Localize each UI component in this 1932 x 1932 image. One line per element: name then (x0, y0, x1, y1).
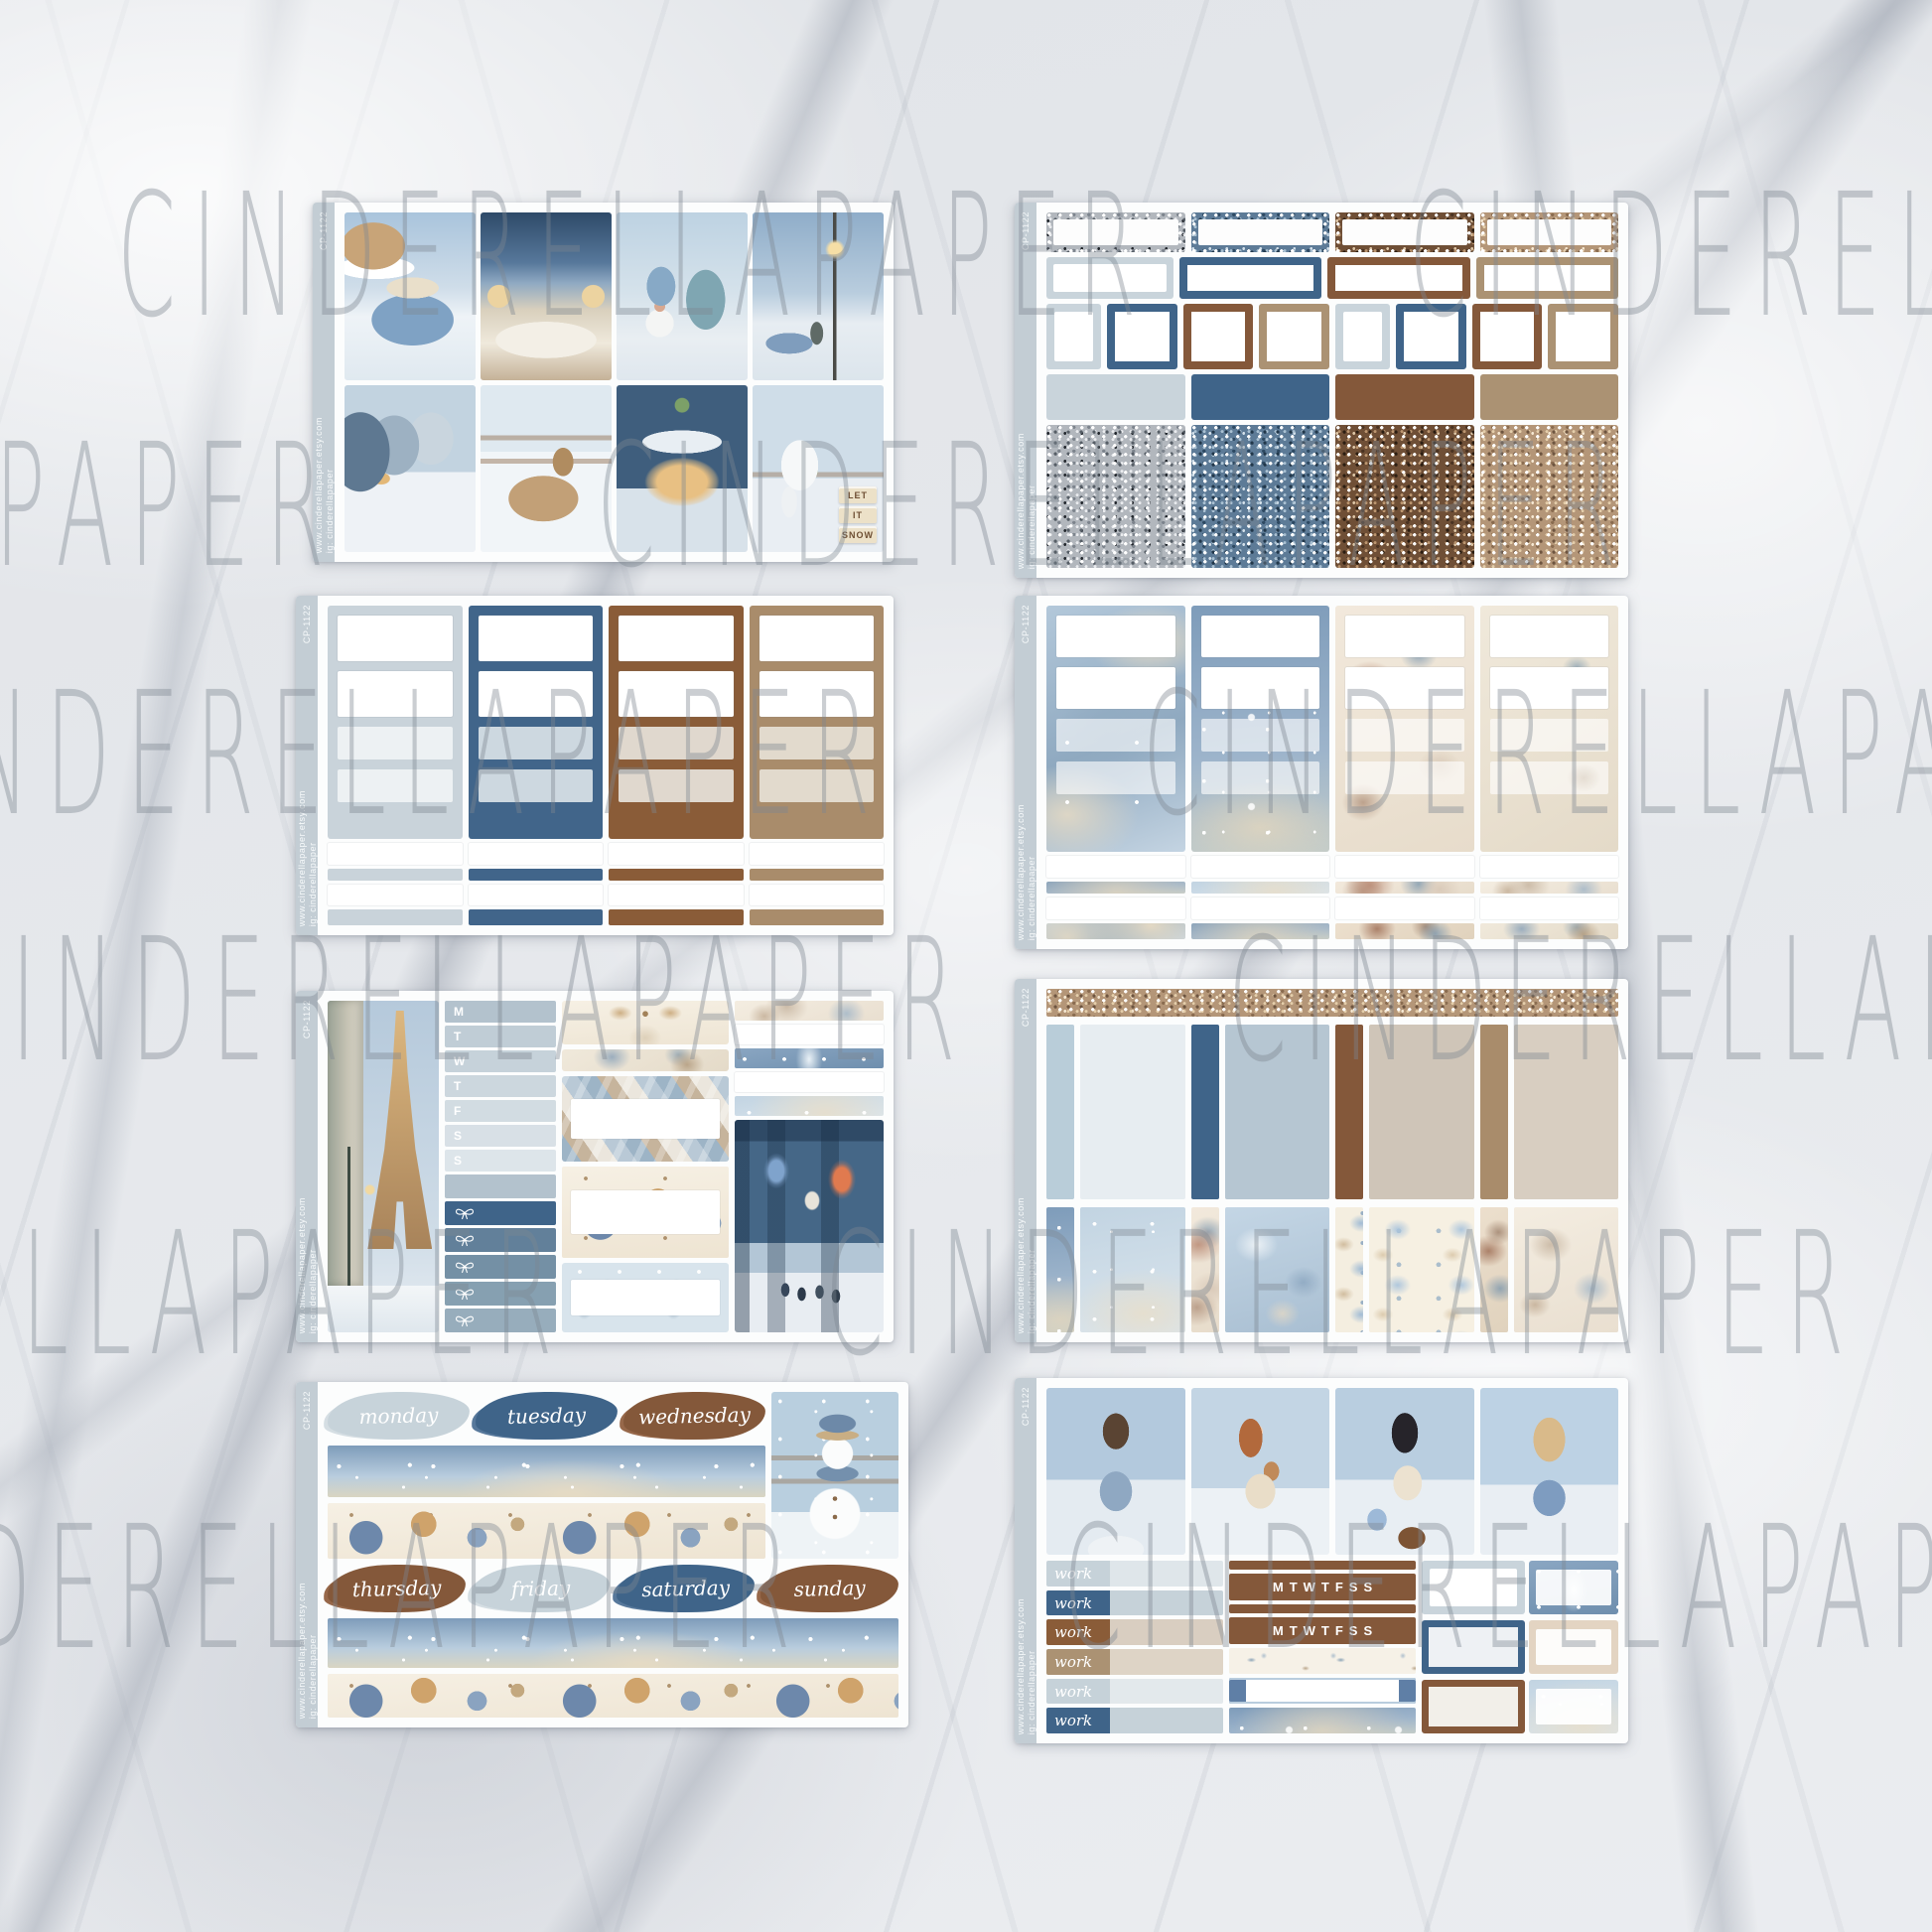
full-box-girl-earmuffs (1046, 1388, 1185, 1555)
label-strip-white (735, 1072, 884, 1092)
pattern-swatch-row (1046, 1207, 1618, 1332)
work-label: work (1046, 1561, 1110, 1587)
swatch-thin-brown (1335, 1025, 1363, 1199)
snowman-illustration (771, 1392, 898, 1559)
shop-instagram: ig: cinderellapaper (308, 1197, 318, 1333)
outline-box-column (1422, 1561, 1618, 1733)
sheet-code: CP-1122 (1021, 1387, 1031, 1426)
checklist-column-brown (609, 606, 744, 925)
header-outline-brown (1327, 257, 1470, 299)
checklist-panel (750, 606, 885, 839)
shop-instagram: ig: cinderellapaper (1027, 804, 1036, 940)
shop-instagram: ig: cinderellapaper (1027, 1197, 1036, 1333)
label-strip-white (1191, 856, 1330, 878)
work-label: work (1046, 1708, 1110, 1733)
write-box (338, 671, 453, 717)
sheet-content: M T W T F S S (318, 991, 894, 1342)
label-strip-pattern (1480, 923, 1619, 939)
checklist-panel (328, 606, 463, 839)
outline-header-row (1046, 257, 1618, 299)
washi-strip-ornaments (328, 1503, 765, 1559)
shop-links: www.cinderellapaper.etsy.com ig: cindere… (1016, 1598, 1036, 1734)
frosted-box (1490, 761, 1609, 794)
full-box-truck-illustration (345, 212, 476, 380)
work-label: work (1046, 1649, 1110, 1675)
work-strip-extension (1110, 1590, 1223, 1616)
full-box-grid: LET IT SNOW (345, 212, 884, 552)
watermark-row: CINDERELLAPAPERCINDERELLAPAPER (0, 1537, 1932, 1639)
work-strip-extension (1110, 1619, 1223, 1645)
bow-icon (454, 1233, 476, 1247)
shop-links: www.cinderellapaper.etsy.com ig: cindere… (1016, 804, 1036, 940)
knit-pattern-box (562, 1076, 729, 1162)
sheet-content (1036, 596, 1628, 949)
day-cover-row-2: thursday friday saturday sunday (328, 1565, 898, 1612)
label-strip-color (609, 909, 744, 925)
glitter-header-gold (1480, 212, 1619, 252)
habit-letter: S (454, 1154, 462, 1168)
label-strip-pattern (1191, 882, 1330, 894)
square-write-area (1054, 312, 1093, 361)
write-box (1201, 616, 1320, 657)
box-row (1422, 1680, 1618, 1733)
write-box (759, 671, 875, 717)
label-strip-color (328, 869, 463, 881)
sticker-sheet-headers-glitter: CP-1122 www.cinderellapaper.etsy.com ig:… (1015, 203, 1628, 578)
header-write-area (1198, 219, 1323, 245)
header-outline-blue (1179, 257, 1322, 299)
frosted-box (1056, 719, 1175, 752)
watermark-text: CINDERELLAPAPER (0, 406, 341, 606)
label-strip-color (469, 869, 604, 881)
sheet-edge-tab: CP-1122 www.cinderellapaper.etsy.com ig:… (313, 203, 335, 562)
top-left-section: monday tuesday wednesday (328, 1392, 765, 1559)
header-write-area (1487, 219, 1612, 245)
shop-instagram: ig: cinderellapaper (325, 417, 335, 553)
habit-letter: F (454, 1104, 461, 1118)
tinted-box (619, 769, 734, 802)
full-box-girl-fawn (1191, 1388, 1330, 1555)
box-outline-blue (1422, 1620, 1525, 1674)
wood-block: LET (839, 486, 877, 503)
mini-washi-strip (1229, 1678, 1416, 1704)
label-strip-white (1335, 856, 1474, 878)
header-write-area (1053, 264, 1167, 292)
frosted-box (1345, 761, 1464, 794)
bow-icon (454, 1260, 476, 1274)
label-strip-white (469, 843, 604, 865)
work-label-strip: work (1046, 1590, 1223, 1616)
decorated-column-stocking (1046, 606, 1185, 939)
work-strip-extension (1110, 1561, 1223, 1587)
sheet-code: CP-1122 (319, 211, 329, 250)
label-strip-white (328, 843, 463, 865)
full-box-girl-shopper (1335, 1388, 1474, 1555)
work-label: work (1046, 1679, 1110, 1705)
tinted-box (338, 769, 453, 802)
work-label-strip: work (1046, 1649, 1223, 1675)
label-strip-color (750, 869, 885, 881)
work-strip-extension (1110, 1679, 1223, 1705)
write-box (1056, 667, 1175, 709)
tinted-box (619, 727, 734, 759)
sheet-content: LET IT SNOW (335, 203, 894, 562)
day-cover-friday: friday (472, 1563, 611, 1613)
label-strip-pattern (1046, 882, 1185, 894)
work-label-strip: work (1046, 1679, 1223, 1705)
sticker-sheet-date-covers: CP-1122 www.cinderellapaper.etsy.com ig:… (296, 1382, 908, 1727)
label-strip-white (328, 885, 463, 906)
sticker-sheet-checklist-columns: CP-1122 www.cinderellapaper.etsy.com ig:… (296, 596, 894, 935)
paris-eiffel-illustration (328, 1001, 439, 1332)
habit-letter: W (454, 1054, 465, 1068)
bottom-section: work work work work work work MTWTFSS MT… (1046, 1561, 1618, 1733)
swatch-pattern-sweater (1335, 1207, 1363, 1332)
solid-bar-row (1046, 374, 1618, 420)
decorated-column-poinsettia (1335, 606, 1474, 939)
label-strip-pattern (1191, 923, 1330, 939)
solid-swatch-row (1046, 1025, 1618, 1199)
work-label: work (1046, 1590, 1110, 1616)
write-area (1430, 1569, 1517, 1606)
label-strip-white (750, 885, 885, 906)
write-area (571, 1190, 720, 1234)
day-cover-sunday: sunday (759, 1563, 898, 1613)
write-box (338, 616, 453, 661)
work-label-strip: work (1046, 1708, 1223, 1733)
label-strip-pattern (1335, 882, 1474, 894)
glitter-header-brown (1335, 212, 1474, 252)
habit-strip: T (445, 1026, 556, 1047)
header-pale-blue (1046, 257, 1173, 299)
label-strip-white (1335, 897, 1474, 919)
shop-links: www.cinderellapaper.etsy.com ig: cindere… (297, 1583, 318, 1719)
habit-strip: W (445, 1050, 556, 1072)
product-photo-marble-background: CINDERELLAPAPERCINDERELLAPAPER CINDERELL… (0, 0, 1932, 1932)
sheet-edge-tab: CP-1122 www.cinderellapaper.etsy.com ig:… (296, 1382, 318, 1727)
pine-pattern-box (562, 1263, 729, 1332)
write-box (1490, 616, 1609, 657)
frosted-box (1345, 719, 1464, 752)
sheet-code: CP-1122 (302, 1391, 312, 1430)
day-cover-monday: monday (327, 1390, 470, 1441)
checklist-column-tan (750, 606, 885, 925)
watermark-row: CINDERELLAPAPERCINDERELLAPAPER (0, 703, 1932, 805)
label-strip-white (750, 843, 885, 865)
bow-icon (454, 1287, 476, 1301)
habit-strip: T (445, 1075, 556, 1097)
bow-strip (445, 1201, 556, 1225)
decorated-columns (1046, 606, 1618, 939)
label-strip-pattern (735, 1001, 884, 1021)
square-outline-blue (1396, 304, 1466, 369)
label-strip-column (735, 1001, 884, 1332)
label-strip-color (328, 909, 463, 925)
label-strip-pattern (1480, 882, 1619, 894)
habit-tracker-column: M T W T F S S (445, 1001, 556, 1332)
solid-bar-dark-blue (1191, 374, 1330, 420)
pattern-box-snow-tree (1529, 1561, 1618, 1614)
shop-links: www.cinderellapaper.etsy.com ig: cindere… (1016, 433, 1036, 569)
watermark-row: CINDERELLAPAPERCINDERELLAPAPER (0, 1243, 1932, 1345)
sheet-code: CP-1122 (302, 605, 312, 643)
glitter-header-row (1046, 212, 1618, 252)
work-label-strip: work (1046, 1619, 1223, 1645)
mini-washi-strip (1229, 1648, 1416, 1674)
glitter-square-silver (1046, 425, 1185, 568)
glitter-square-blue (1191, 425, 1330, 568)
frosted-box (1056, 761, 1175, 794)
box-outline-brown (1422, 1680, 1525, 1733)
label-strip-white (1046, 856, 1185, 878)
shop-instagram: ig: cinderellapaper (1027, 433, 1036, 569)
swatch-pattern-snowflake-pale (1080, 1207, 1185, 1332)
day-cover-thursday: thursday (327, 1563, 466, 1613)
write-area (1536, 1570, 1611, 1605)
write-box (1056, 616, 1175, 657)
label-strip-white (1480, 897, 1619, 919)
decorated-panel (1191, 606, 1330, 852)
shop-url: www.cinderellapaper.etsy.com (297, 790, 307, 926)
ornament-pattern-box (562, 1167, 729, 1258)
write-box (1345, 616, 1464, 657)
write-area (571, 1280, 720, 1315)
pattern-box-snow-pale (1529, 1680, 1618, 1733)
shop-links: www.cinderellapaper.etsy.com ig: cindere… (297, 1197, 318, 1333)
swatch-pattern-sweater-cream (1369, 1207, 1474, 1332)
sheet-edge-tab: CP-1122 www.cinderellapaper.etsy.com ig:… (1015, 203, 1036, 578)
header-write-area (1342, 219, 1467, 245)
work-label: work (1046, 1619, 1110, 1645)
mini-washi-strip (1229, 1708, 1416, 1733)
sheet-edge-tab: CP-1122 www.cinderellapaper.etsy.com ig:… (1015, 1378, 1036, 1743)
bow-strip (445, 1255, 556, 1279)
write-box (759, 616, 875, 661)
checklist-column-pale-blue (328, 606, 463, 925)
full-box-girl-snowball (1480, 1388, 1619, 1555)
label-strip-white (735, 1025, 884, 1044)
top-section: monday tuesday wednesday (328, 1392, 898, 1559)
label-strip-white (1480, 856, 1619, 878)
bow-strip (445, 1228, 556, 1252)
swatch-thin-dark-blue (1191, 1025, 1219, 1199)
write-area (1536, 1629, 1611, 1665)
checklist-columns (328, 606, 884, 925)
washi-strip-snow-sky (328, 1618, 898, 1668)
sheet-content: work work work work work work MTWTFSS MT… (1036, 1378, 1628, 1743)
frosted-box (1201, 719, 1320, 752)
habit-letter: M (454, 1005, 464, 1019)
box-row (1422, 1561, 1618, 1614)
frosted-box (1490, 719, 1609, 752)
week-strip-column: MTWTFSS MTWTFSS (1229, 1561, 1416, 1733)
label-strip-white (1191, 897, 1330, 919)
label-strip-white (1046, 897, 1185, 919)
work-strip-extension (1110, 1708, 1223, 1733)
write-box (1490, 667, 1609, 709)
day-cover-wednesday: wednesday (622, 1390, 765, 1441)
write-box (1345, 667, 1464, 709)
square-outline-tan (1548, 304, 1618, 369)
bow-pattern-box (562, 1001, 729, 1044)
lamp-post-shape (347, 1147, 350, 1300)
label-strip-color (609, 869, 744, 881)
solid-bar-pale-blue (1046, 374, 1185, 420)
snow-ground-shape (328, 1286, 439, 1332)
frosted-box (1201, 761, 1320, 794)
tinted-box (759, 727, 875, 759)
box-row (1422, 1620, 1618, 1674)
bow-icon (454, 1313, 476, 1327)
full-box-rocking-horse-illustration: LET IT SNOW (753, 385, 884, 553)
habit-letter: T (454, 1079, 461, 1093)
sheet-edge-tab: CP-1122 www.cinderellapaper.etsy.com ig:… (1015, 979, 1036, 1342)
floral-strip (562, 1049, 729, 1071)
shop-instagram: ig: cinderellapaper (308, 790, 318, 926)
square-pale-blue (1335, 304, 1390, 369)
glitter-header-silver (1046, 212, 1185, 252)
decorated-column-snowflakes (1191, 606, 1330, 939)
label-strip-white (609, 843, 744, 865)
label-strip-color (750, 909, 885, 925)
glitter-square-brown (1335, 425, 1474, 568)
full-box-bedroom-illustration (481, 212, 612, 380)
full-box-cafe-illustration (617, 385, 748, 553)
washi-strip-ornaments (328, 1674, 898, 1718)
sheet-edge-tab: CP-1122 www.cinderellapaper.etsy.com ig:… (1015, 596, 1036, 949)
tinted-box (479, 727, 594, 759)
box-pale-blue (1422, 1561, 1525, 1614)
glitter-square-row (1046, 425, 1618, 568)
day-cover-row-1: monday tuesday wednesday (328, 1392, 765, 1440)
solid-bar-tan (1480, 374, 1619, 420)
habit-strip: M (445, 1001, 556, 1023)
sheet-code: CP-1122 (1021, 605, 1031, 643)
full-box-town-illustration (345, 385, 476, 553)
swatch-pattern-blue-floral (1225, 1207, 1330, 1332)
week-letters-strip: MTWTFSS (1229, 1617, 1416, 1644)
wood-block: SNOW (839, 526, 877, 543)
checklist-panel (469, 606, 604, 839)
eiffel-tower-shape (367, 1011, 432, 1249)
decorated-box-column (562, 1001, 729, 1332)
full-box-street-lamp-illustration (753, 212, 884, 380)
solid-bar-brown (1335, 374, 1474, 420)
bow-strip (445, 1309, 556, 1332)
bow-icon (454, 1206, 476, 1220)
sticker-sheet-girls-work: CP-1122 www.cinderellapaper.etsy.com ig:… (1015, 1378, 1628, 1743)
decorated-panel (1480, 606, 1619, 852)
swatch-wide-blue-gray (1225, 1025, 1330, 1199)
label-strip-pattern (735, 1048, 884, 1068)
paris-building-shape (328, 1001, 363, 1286)
day-cover-tuesday: tuesday (475, 1390, 618, 1441)
shop-instagram: ig: cinderellapaper (1027, 1598, 1036, 1734)
habit-strip: S (445, 1125, 556, 1147)
washi-strip-snow-sky (328, 1446, 765, 1497)
shop-url: www.cinderellapaper.etsy.com (297, 1197, 307, 1333)
label-strip-white (469, 885, 604, 906)
swatch-wide-beige (1514, 1025, 1619, 1199)
swatch-wide-powder-blue (1080, 1025, 1185, 1199)
shop-url: www.cinderellapaper.etsy.com (297, 1583, 307, 1719)
habit-letter: T (454, 1030, 461, 1043)
sticker-sheet-full-boxes: CP-1122 www.cinderellapaper.etsy.com ig:… (313, 203, 894, 562)
sheet-edge-tab: CP-1122 www.cinderellapaper.etsy.com ig:… (296, 596, 318, 935)
blank-strip (445, 1174, 556, 1198)
gold-glitter-washi-strip (1046, 989, 1618, 1017)
pattern-box-fawn (1529, 1620, 1618, 1674)
square-outline-brown (1472, 304, 1543, 369)
tinted-box (479, 769, 594, 802)
write-box (619, 671, 734, 717)
sheet-content: monday tuesday wednesday thursday friday… (318, 1382, 908, 1727)
shop-url: www.cinderellapaper.etsy.com (1016, 1598, 1026, 1734)
day-cover-saturday: saturday (616, 1563, 755, 1613)
full-box-gnome-illustration (617, 212, 748, 380)
shop-url: www.cinderellapaper.etsy.com (1016, 433, 1026, 569)
habit-strip: S (445, 1150, 556, 1172)
times-square-illustration (735, 1120, 884, 1332)
girl-box-row (1046, 1388, 1618, 1555)
sheet-code: CP-1122 (1021, 211, 1031, 250)
decorated-panel (1046, 606, 1185, 852)
label-strip-pattern (735, 1096, 884, 1116)
sheet-content (1036, 979, 1628, 1342)
checklist-column-dark-blue (469, 606, 604, 925)
square-pale-blue (1046, 304, 1101, 369)
checklist-panel (609, 606, 744, 839)
swatch-thin-tan (1480, 1025, 1508, 1199)
square-outline-brown (1183, 304, 1254, 369)
habit-strip: F (445, 1100, 556, 1122)
decorated-panel (1335, 606, 1474, 852)
square-write-area (1343, 312, 1382, 361)
swatch-wide-taupe (1369, 1025, 1474, 1199)
header-outline-tan (1476, 257, 1619, 299)
swatch-thin-pale-blue (1046, 1025, 1074, 1199)
sheet-edge-tab: CP-1122 www.cinderellapaper.etsy.com ig:… (296, 991, 318, 1342)
tinted-box (759, 769, 875, 802)
square-outline-blue (1107, 304, 1177, 369)
square-outline-tan (1259, 304, 1329, 369)
shop-instagram: ig: cinderellapaper (308, 1583, 318, 1719)
bow-strip (445, 1282, 556, 1306)
glitter-header-blue (1191, 212, 1330, 252)
thin-brown-strip (1229, 1604, 1416, 1613)
header-write-area (1053, 219, 1178, 245)
work-label-strip: work (1046, 1561, 1223, 1587)
swatch-pattern-cream-floral (1514, 1207, 1619, 1332)
write-area (1536, 1689, 1611, 1725)
sheet-code: CP-1122 (1021, 988, 1031, 1027)
sticker-sheet-swatches: CP-1122 www.cinderellapaper.etsy.com ig:… (1015, 979, 1628, 1342)
swatch-pattern-brown-floral (1480, 1207, 1508, 1332)
shop-links: www.cinderellapaper.etsy.com ig: cindere… (1016, 1197, 1036, 1333)
shop-links: www.cinderellapaper.etsy.com ig: cindere… (314, 417, 335, 553)
label-strip-color (469, 909, 604, 925)
label-strip-pattern (1335, 923, 1474, 939)
label-strip-pattern (1046, 923, 1185, 939)
habit-letter: S (454, 1129, 462, 1143)
wood-block: IT (839, 506, 877, 523)
label-strip-white (609, 885, 744, 906)
work-strip-extension (1110, 1649, 1223, 1675)
sticker-sheet-paris-habits: CP-1122 www.cinderellapaper.etsy.com ig:… (296, 991, 894, 1342)
sticker-sheet-decorated-columns: CP-1122 www.cinderellapaper.etsy.com ig:… (1015, 596, 1628, 949)
swatch-pattern-snowflake-blue (1046, 1207, 1074, 1332)
shop-url: www.cinderellapaper.etsy.com (314, 417, 324, 553)
